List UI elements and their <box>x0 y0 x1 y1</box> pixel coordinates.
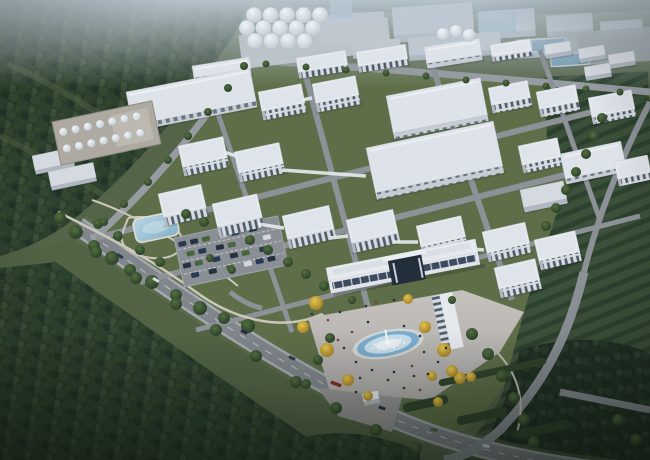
aerial-rendering <box>0 0 650 460</box>
vignette <box>0 0 650 460</box>
scene-canvas <box>0 0 650 460</box>
